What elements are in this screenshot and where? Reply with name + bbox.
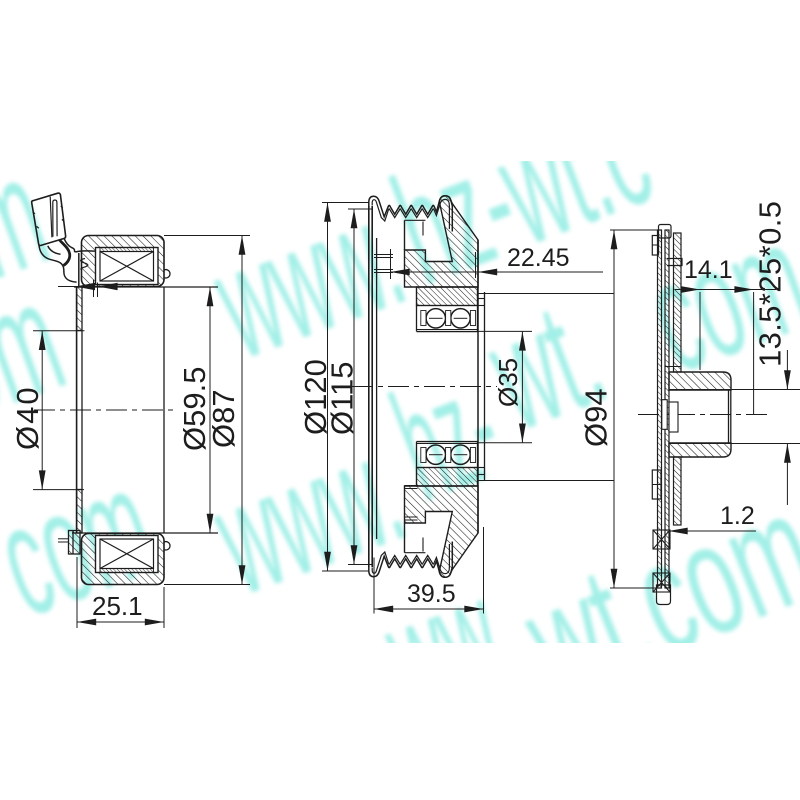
svg-text:Ø87: Ø87: [206, 389, 241, 448]
svg-text:39.5: 39.5: [407, 580, 456, 608]
svg-text:14.1: 14.1: [684, 256, 733, 284]
svg-text:22.45: 22.45: [507, 244, 570, 272]
svg-text:www.: www.: [193, 165, 424, 392]
svg-text:Ø115: Ø115: [325, 361, 360, 435]
svg-text:13.5*25*0.5: 13.5*25*0.5: [753, 201, 788, 367]
svg-text:Ø40: Ø40: [10, 385, 45, 450]
svg-text:Ø35: Ø35: [493, 358, 523, 407]
svg-text:wt.com: wt.com: [502, 460, 800, 732]
svg-text:1.2: 1.2: [720, 502, 755, 530]
svg-text:Ø94: Ø94: [579, 388, 614, 447]
svg-text:25.1: 25.1: [92, 591, 143, 621]
